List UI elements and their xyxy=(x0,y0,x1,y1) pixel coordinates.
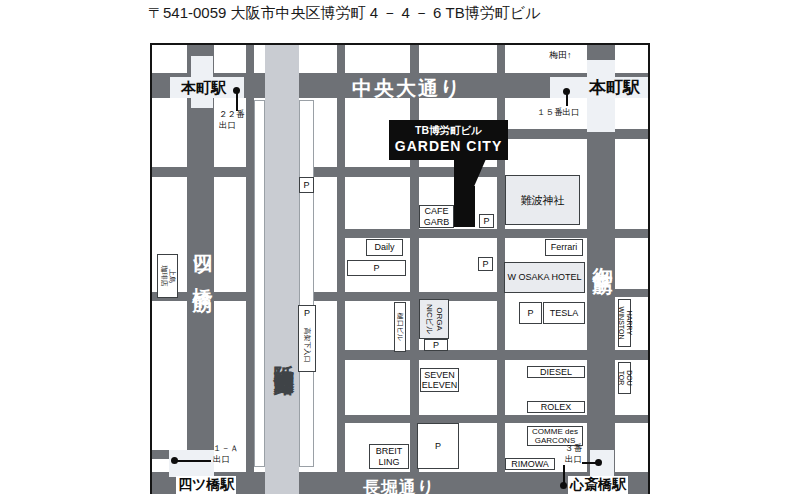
higuchi-building-box: 樋口ビル xyxy=(394,302,406,352)
yotsubashi-suji-label: 四ツ橋筋 xyxy=(190,239,217,282)
seven-eleven-box: SEVEN ELEVEN xyxy=(420,368,459,392)
harry-winston-label: HARRY WINSTON xyxy=(616,300,633,346)
nagahori-dori-label: 長堀通り xyxy=(363,476,435,494)
road-minor-h2 xyxy=(152,167,505,177)
w-osaka-hotel-box: W OSAKA HOTEL xyxy=(504,262,585,293)
rolex-box: ROLEX xyxy=(527,401,585,413)
exit3-label: ３番 出口 xyxy=(556,443,582,464)
doutor-box: DOU TOR xyxy=(618,362,631,394)
shinsaibashi-station-label: 心斎橋駅 xyxy=(568,476,628,494)
exit3-line-v xyxy=(563,465,565,483)
tesla-box: TESLA xyxy=(543,302,585,324)
road-minor-h4-east xyxy=(615,289,650,297)
doutor-label: DOU TOR xyxy=(616,363,633,393)
organic-building-box: ORGA NICビル xyxy=(419,299,449,339)
road-minor-h4 xyxy=(152,292,505,301)
cafe-garb-box: CAFE GARB xyxy=(419,205,454,228)
parking-box-organic: P xyxy=(424,339,448,351)
exit3-line-h xyxy=(582,462,596,464)
hommachi-east-label: 本町駅 xyxy=(589,76,640,99)
harry-winston-box: HARRY WINSTON xyxy=(618,299,631,347)
chuo-odori-label: 中央大通り xyxy=(352,75,462,102)
parking-box-center: P xyxy=(478,257,493,271)
ueshima-coffee-label: 上島 珈琲店 xyxy=(159,256,176,296)
expressway-side-lane-west xyxy=(254,100,265,467)
kokashita-entrance-label: 高架下入口 xyxy=(303,323,311,367)
yotsubashi-station-label: 四ツ橋駅 xyxy=(176,476,236,494)
exit15-label: １５番出口 xyxy=(537,107,580,118)
exit22-line xyxy=(236,91,238,111)
kokashita-entrance-box: P 高架下入口 xyxy=(298,305,316,372)
map-canvas: 阪神高速道路 中央大通り 長堀通り 四ツ橋筋 御堂筋 本町駅 本町駅 四ツ橋駅 … xyxy=(150,43,650,494)
parking-box-near-building: P xyxy=(479,214,494,228)
target-building-name: TB博労町ビル xyxy=(389,124,508,138)
target-garden-city-label: GARDEN CITY xyxy=(389,138,508,154)
parking-box-wide: P xyxy=(347,260,406,276)
daily-box: Daily xyxy=(366,239,403,256)
road-minor-h5 xyxy=(337,350,650,360)
ferrari-box: Ferrari xyxy=(545,239,583,256)
road-minor-v1 xyxy=(246,45,254,494)
access-map-page: 〒541-0059 大阪市中央区博労町 4 － 4 － 6 TB博労町ビル 阪神… xyxy=(0,0,800,494)
address-title: 〒541-0059 大阪市中央区博労町 4 － 4 － 6 TB博労町ビル xyxy=(148,4,540,23)
exit1a-line xyxy=(177,460,211,462)
hommachi-west-label: 本町駅 xyxy=(181,79,226,98)
diesel-box: DIESEL xyxy=(527,366,585,378)
exit1a-label: １－Ａ 出口 xyxy=(213,443,239,464)
road-minor-h3 xyxy=(337,229,650,238)
exit15-line xyxy=(566,92,568,106)
organic-building-label: ORGA NICビル xyxy=(424,300,443,338)
kokashita-parking-label: P xyxy=(300,308,314,319)
parking-box-tesla: P xyxy=(519,302,542,324)
exit3-dot-south xyxy=(560,482,567,489)
midosuji-label: 御堂筋 xyxy=(590,251,617,263)
breitling-box: BREIT LING xyxy=(369,444,409,469)
expressway-side-lane-east xyxy=(299,100,314,467)
hanshin-expressway-strip xyxy=(265,45,299,494)
exit22-label: ２２番 出口 xyxy=(219,109,245,130)
target-callout: TB博労町ビル GARDEN CITY xyxy=(389,120,508,160)
rimowa-box: RIMOWA xyxy=(505,458,555,470)
ueshima-coffee-box: 上島 珈琲店 xyxy=(157,254,178,298)
parking-box-lane-top: P xyxy=(299,177,314,193)
target-building-marker xyxy=(454,186,475,227)
road-minor-v2 xyxy=(337,45,345,494)
parking-box-south: P xyxy=(417,423,459,469)
hanshin-expressway-label: 阪神高速道路 xyxy=(270,348,298,360)
namba-shrine-box: 難波神社 xyxy=(505,175,580,225)
umeda-direction-label: 梅田↑ xyxy=(549,49,572,62)
exit3-dot-east xyxy=(595,459,602,466)
road-minor-h6 xyxy=(337,415,650,423)
higuchi-building-label: 樋口ビル xyxy=(396,303,404,351)
